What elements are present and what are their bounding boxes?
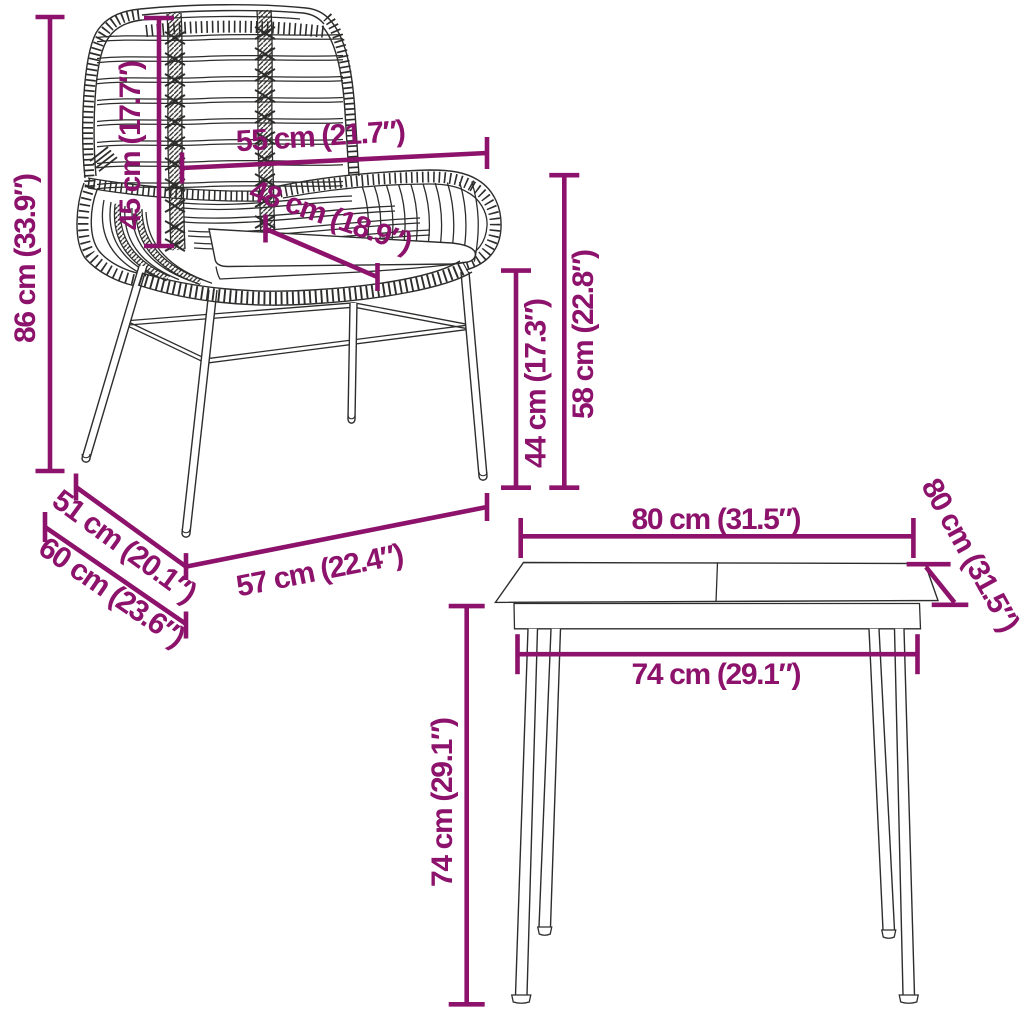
svg-text:58 cm (22.8″): 58 cm (22.8″) bbox=[567, 249, 600, 419]
svg-text:74 cm (29.1″): 74 cm (29.1″) bbox=[426, 717, 459, 887]
svg-text:86 cm (33.9″): 86 cm (33.9″) bbox=[9, 173, 42, 343]
svg-text:44 cm (17.3″): 44 cm (17.3″) bbox=[520, 298, 553, 468]
svg-text:74 cm (29.1″): 74 cm (29.1″) bbox=[632, 658, 802, 691]
svg-text:80 cm (31.5″): 80 cm (31.5″) bbox=[632, 503, 802, 536]
svg-text:45 cm (17.7″): 45 cm (17.7″) bbox=[114, 60, 147, 230]
